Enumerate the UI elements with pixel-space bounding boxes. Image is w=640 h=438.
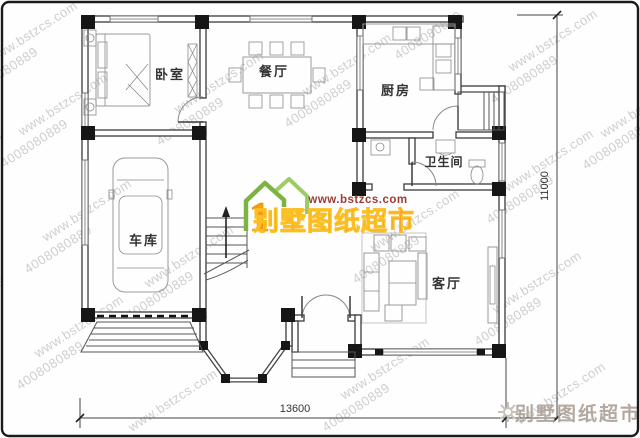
logo-site-url: www.bstzcs.com: [307, 194, 407, 206]
washing-machine: [371, 140, 390, 155]
bathroom-label: 卫生间: [424, 154, 463, 169]
corner-brand-text: 别墅图纸超市: [514, 402, 640, 425]
garage-label: 车库: [129, 233, 159, 248]
dining-label: 餐厅: [258, 64, 289, 79]
kitchen-label: 厨房: [381, 83, 411, 98]
site-logo: 1 www.bstzcs.com 别墅图纸超市: [246, 179, 415, 241]
floor-plan-page: www.bstzcs.com 4008080889 电话 www.bstzcs.…: [0, 0, 640, 438]
entry-porch: [292, 352, 355, 377]
bedroom-label: 卧室: [155, 67, 185, 82]
living-label: 客厅: [432, 276, 462, 291]
stove: [436, 44, 451, 57]
bathroom-sink: [436, 140, 455, 153]
bed: [96, 34, 150, 106]
width-dimension-label: 13600: [280, 403, 311, 415]
kitchen-sink: [393, 27, 406, 40]
height-dimension-label: 11000: [539, 171, 551, 201]
tv: [490, 266, 495, 304]
logo-brand-text: 别墅图纸超市: [252, 206, 415, 236]
watermark-text: www.bstzcs.com: [125, 366, 220, 435]
corner-brand: 别墅图纸超市: [498, 402, 640, 425]
